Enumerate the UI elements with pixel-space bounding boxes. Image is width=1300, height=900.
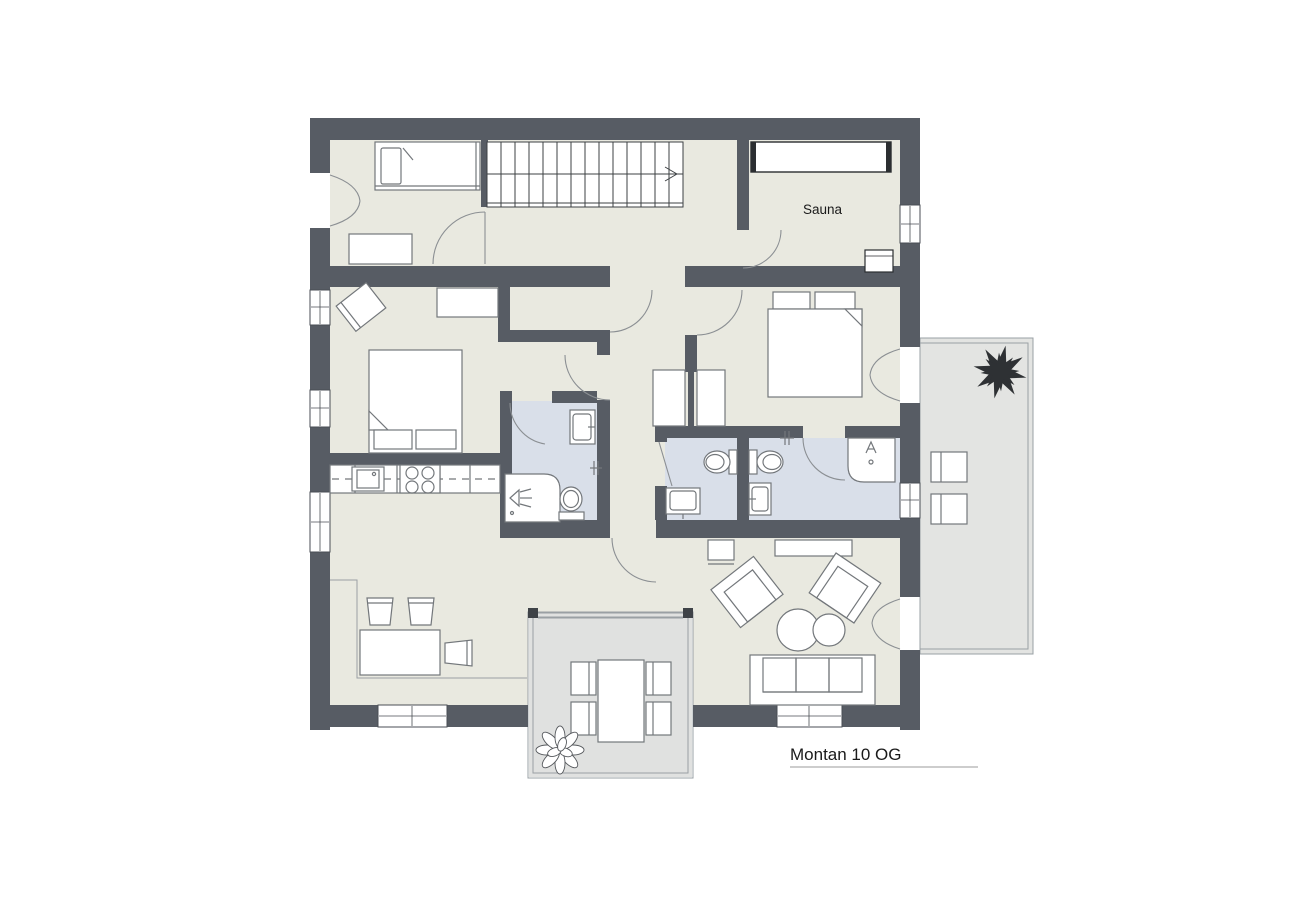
wall-bath2-west (737, 426, 749, 530)
wall-wc-north (655, 426, 745, 438)
plan-title: Montan 10 OG (790, 745, 902, 764)
window-left-1 (310, 290, 330, 325)
dresser (349, 234, 412, 264)
wall-kitchen (330, 453, 500, 465)
dining-chair-1 (367, 598, 393, 625)
wardrobe-hall (653, 370, 685, 426)
side-table (708, 540, 734, 564)
window-right-terrace (900, 483, 920, 518)
kitchen-stove (400, 465, 440, 493)
balcony-chair-1 (571, 662, 596, 695)
window-bottom-living (777, 705, 842, 727)
staircase (487, 142, 683, 207)
wall-top (310, 118, 920, 140)
window-bottom-dining (378, 705, 447, 727)
balcony-post-left (528, 608, 538, 618)
wall-bath1-north (552, 391, 597, 403)
wall-wardrobe-divider (688, 372, 694, 426)
wardrobe-bedroom2 (697, 370, 725, 426)
bath2-shower (848, 438, 895, 482)
wall-divider-left (330, 266, 610, 287)
dining-table (360, 630, 440, 675)
kitchen (330, 465, 500, 493)
wall-closet-south (498, 330, 610, 342)
single-bed (375, 142, 480, 190)
wall-wc-west (655, 486, 667, 520)
double-bed-right (768, 292, 862, 397)
wc-sink (666, 488, 700, 519)
bedroom-left-dresser (437, 288, 498, 317)
dining-chair-3 (445, 640, 472, 666)
sauna-heater (865, 250, 893, 272)
wall-sauna-west (737, 140, 749, 230)
sofa (750, 655, 875, 705)
terrace-chair-2 (931, 494, 967, 524)
sideboard (775, 540, 852, 556)
kitchen-sink (352, 467, 384, 491)
balcony-chair-4 (646, 702, 671, 735)
plan-title-block: Montan 10 OG (790, 745, 978, 767)
double-bed-left (369, 350, 462, 453)
balcony-chair-3 (646, 662, 671, 695)
balcony-post-right (683, 608, 693, 618)
sauna-bench (751, 142, 891, 172)
wall-left (310, 552, 330, 730)
floor-plan: Sauna (0, 0, 1300, 900)
terrace-right (920, 338, 1033, 654)
floor-plan-page: Sauna (0, 0, 1300, 900)
balcony-bottom (528, 608, 693, 778)
balcony-table (598, 660, 644, 742)
balcony-chair-2 (571, 702, 596, 735)
sauna-label: Sauna (803, 202, 843, 217)
window-right-sauna (900, 205, 920, 243)
ensuite-toilet (559, 487, 584, 520)
terrace-chair-1 (931, 452, 967, 482)
wall-hall-west (597, 400, 610, 520)
wall-south-band-left (500, 520, 610, 538)
wall-south-band-right (656, 520, 920, 538)
window-left-3 (310, 492, 330, 552)
dining-chair-2 (408, 598, 434, 625)
wc-toilet (704, 450, 737, 474)
ensuite-sink (570, 410, 595, 444)
balcony-plant (536, 726, 584, 774)
coffee-tables (777, 609, 845, 651)
wall-bottom (310, 705, 378, 727)
window-left-2 (310, 390, 330, 427)
wall-right (900, 403, 920, 483)
bath2-sink (749, 483, 771, 515)
wall-bedroom2-stub (685, 335, 697, 372)
ensuite-shower (505, 474, 560, 522)
bath2-toilet (749, 450, 783, 474)
